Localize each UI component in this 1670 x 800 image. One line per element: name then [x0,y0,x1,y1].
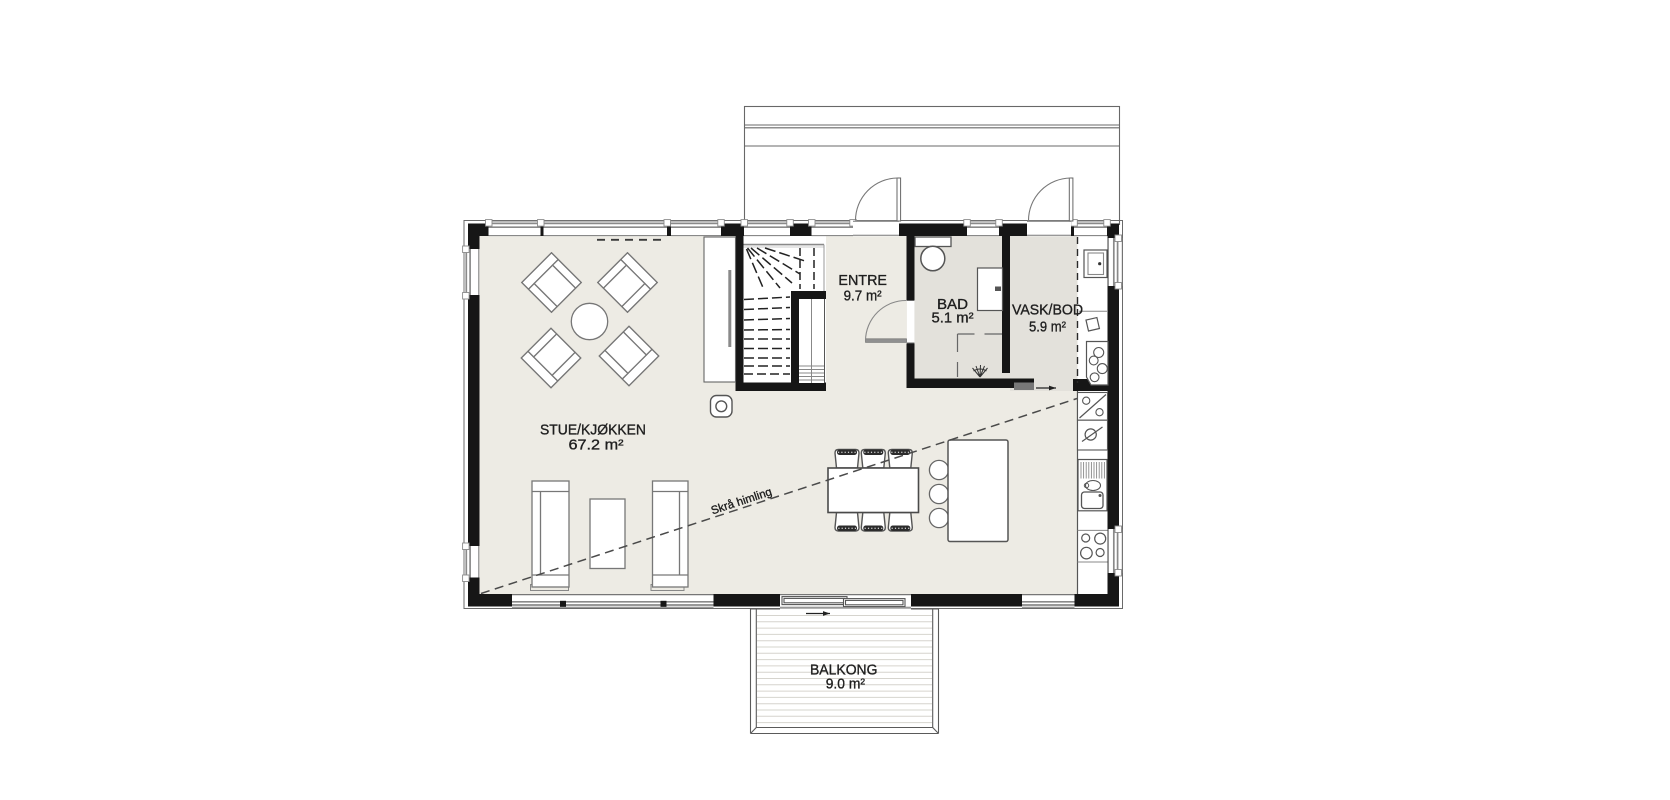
svg-text:5.1 m²: 5.1 m² [932,311,974,327]
svg-text:VASK/BOD: VASK/BOD [1012,303,1083,319]
svg-text:STUE/KJØKKEN: STUE/KJØKKEN [540,423,646,439]
svg-text:ENTRE: ENTRE [838,273,887,289]
svg-text:9.0 m²: 9.0 m² [826,677,865,693]
svg-text:9.7 m²: 9.7 m² [844,288,882,304]
svg-text:67.2 m²: 67.2 m² [569,438,624,454]
svg-text:5.9 m²: 5.9 m² [1029,320,1066,336]
